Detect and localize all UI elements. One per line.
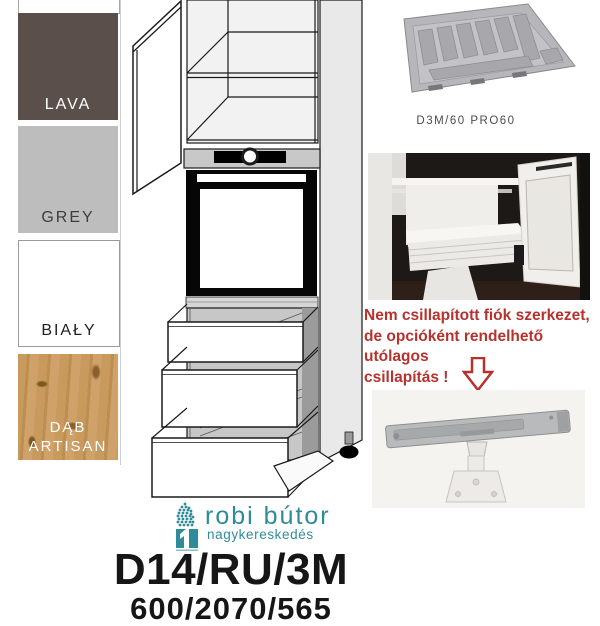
swatch-label: DĄB ARTISAN	[18, 418, 118, 456]
down-arrow-icon	[462, 357, 494, 392]
swatch-lava: LAVA	[18, 13, 118, 120]
drawer-photo	[368, 153, 590, 300]
swatch-label: GREY	[18, 209, 118, 227]
swatch-dab-artisan: DĄB ARTISAN	[18, 354, 118, 460]
cabinet-line-drawing	[118, 0, 368, 505]
swatch-label: BIAŁY	[19, 322, 119, 340]
product-dimensions: 600/2070/565	[28, 593, 434, 625]
brand-tagline: nagykereskedés	[207, 527, 314, 542]
damper-photo	[372, 390, 585, 508]
product-identity: D14/RU/3M 600/2070/565	[28, 548, 434, 625]
swatch-partial-top	[18, 0, 120, 14]
swatch-bialy: BIAŁY	[18, 240, 120, 347]
tray-caption: D3M/60 PRO60	[386, 115, 546, 127]
product-sheet: { "page": { "background": "#ffffff" }, "…	[0, 0, 600, 600]
swatch-label: LAVA	[18, 96, 118, 114]
note-line: Nem csillapított fiók szerkezet,	[364, 306, 600, 327]
product-code: D14/RU/3M	[28, 548, 434, 592]
cutlery-tray-image	[385, 0, 585, 105]
swatch-grey: GREY	[18, 126, 118, 233]
